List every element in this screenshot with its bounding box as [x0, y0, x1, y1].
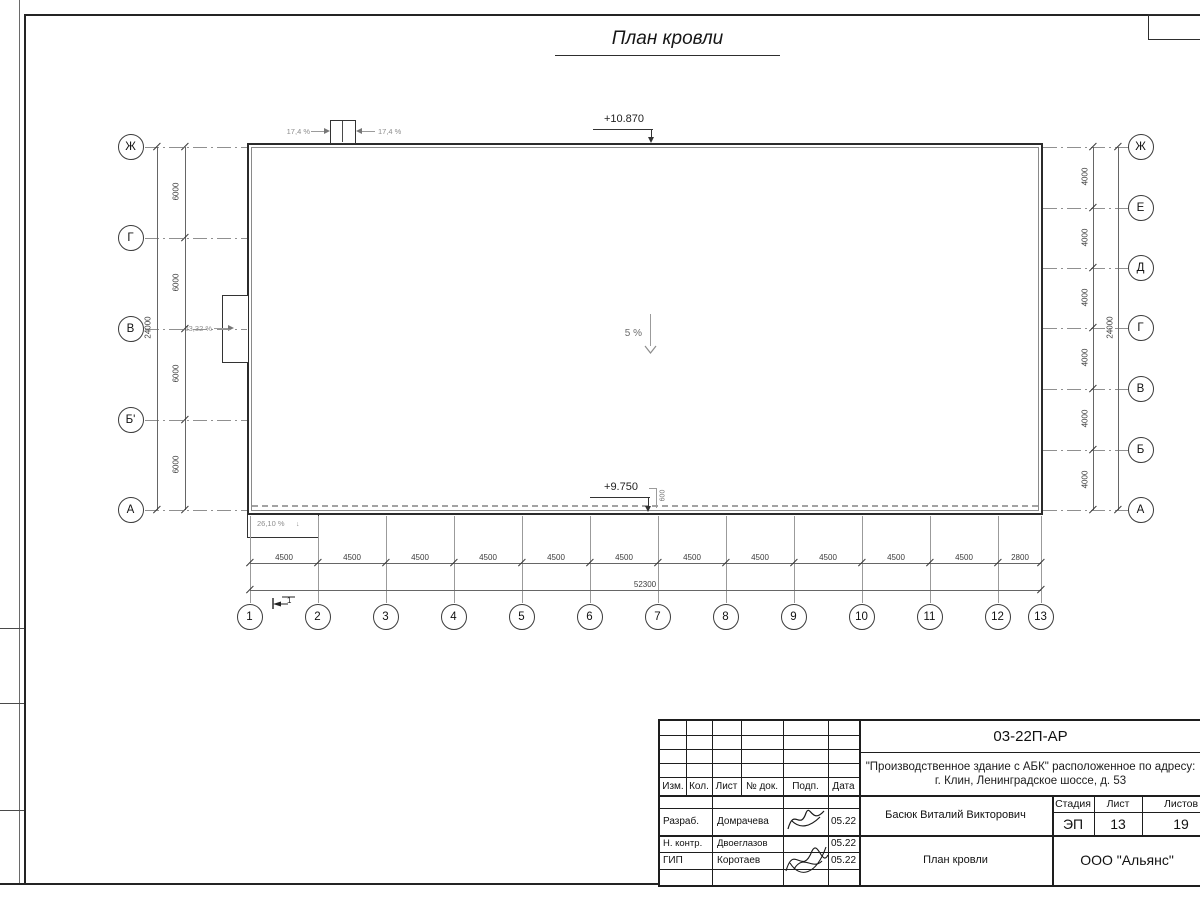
roof-slope-label: 5 %	[612, 328, 642, 339]
dim-label: 4500	[740, 553, 780, 562]
column-label: 1	[246, 611, 252, 623]
signer-name: Домрачева	[714, 808, 786, 835]
dim-label: 4500	[468, 553, 508, 562]
signer-name: Двоеглазов	[714, 835, 786, 852]
sheets-label: Листов	[1142, 795, 1200, 812]
margin-box-divider	[0, 703, 24, 704]
signer-name: Коротаев	[714, 852, 786, 869]
axis-bubble: Ж	[118, 134, 144, 160]
dim-label: 4000	[1081, 460, 1090, 500]
canopy-slope-label: 26,10 %	[257, 519, 285, 528]
stage-label: Стадия	[1052, 795, 1094, 812]
dim-total-label: 24000	[1106, 303, 1115, 353]
sheets-value: 19	[1142, 812, 1200, 835]
stamp-line	[660, 763, 859, 764]
page-title: План кровли	[555, 28, 780, 56]
dim-label: 6000	[172, 172, 181, 212]
margin-box-divider	[0, 810, 24, 811]
company-name: ООО "Альянс"	[1052, 835, 1200, 885]
parapet-dim-label: 600	[660, 481, 667, 511]
sheet-value: 13	[1094, 812, 1142, 835]
stamp-col-list: Лист	[712, 777, 741, 795]
dim-label: 4500	[332, 553, 372, 562]
dimension-line	[157, 147, 158, 510]
drawing-name: План кровли	[859, 835, 1052, 885]
column-label: 11	[924, 611, 936, 623]
dim-label: 4500	[944, 553, 984, 562]
axis-label: Б'	[126, 414, 136, 426]
skylight-slope-left-label: 17,4 %	[280, 127, 310, 136]
grid-column-bubble: 13	[1028, 604, 1054, 630]
axis-label: А	[1137, 504, 1145, 516]
dim-total-label: 24000	[144, 303, 153, 353]
dim-label: 4000	[1081, 338, 1090, 378]
column-label: 6	[586, 611, 592, 623]
dim-label: 4500	[536, 553, 576, 562]
axis-label: Д	[1137, 262, 1145, 274]
stamp-col-ndok: № док.	[741, 777, 783, 795]
dim-label: 6000	[172, 354, 181, 394]
axis-line	[1043, 450, 1128, 451]
axis-line	[145, 238, 247, 239]
dim-label: 4000	[1081, 157, 1090, 197]
corner-stamp-box	[1148, 14, 1200, 40]
grid-column-bubble: 4	[441, 604, 467, 630]
grid-column-bubble: 1	[237, 604, 263, 630]
margin-box-divider	[0, 628, 24, 629]
grid-column-bubble: 5	[509, 604, 535, 630]
roof-inner-line	[251, 147, 1039, 511]
axis-bubble: Д	[1128, 255, 1154, 281]
signer-date: 05.22	[828, 835, 859, 852]
axis-bubble: А	[118, 497, 144, 523]
column-label: 12	[991, 611, 1004, 623]
roof-outline	[247, 143, 1043, 515]
slope-arrow-left-icon	[356, 128, 362, 134]
grid-column-bubble: 2	[305, 604, 331, 630]
stamp-col-podp: Подп.	[783, 777, 828, 795]
skylight	[330, 120, 356, 144]
axis-line	[1043, 208, 1128, 209]
dim-label: 4500	[672, 553, 712, 562]
elevation-arrow-icon	[645, 506, 651, 512]
skylight-divider	[342, 121, 343, 142]
dim-label: 4500	[876, 553, 916, 562]
signer-date: 05.22	[828, 808, 859, 835]
elevation-arrow-icon	[648, 137, 654, 143]
signer-date: 05.22	[828, 852, 859, 869]
dim-label: 4500	[264, 553, 304, 562]
sheet-trim-line	[19, 0, 20, 883]
column-label: 2	[314, 611, 320, 623]
column-label: 7	[654, 611, 660, 623]
dim-label: 2800	[1000, 553, 1040, 562]
axis-label: В	[1137, 383, 1145, 395]
sheet-label: Лист	[1094, 795, 1142, 812]
stamp-line	[660, 735, 859, 736]
elevation-leader	[593, 129, 653, 130]
dim-label: 4500	[400, 553, 440, 562]
stamp-col-izm: Изм.	[660, 777, 686, 795]
dim-label: 4500	[808, 553, 848, 562]
dim-label: 4000	[1081, 399, 1090, 439]
grid-column-bubble: 3	[373, 604, 399, 630]
grid-column-bubble: 10	[849, 604, 875, 630]
project-line1: "Производственное здание с АБК" располож…	[866, 760, 1196, 774]
axis-line	[1043, 328, 1128, 329]
column-label: 9	[790, 611, 796, 623]
axis-label: Ж	[1135, 141, 1146, 153]
axis-bubble: Е	[1128, 195, 1154, 221]
axis-bubble: Б'	[118, 407, 144, 433]
dim-label: 4000	[1081, 278, 1090, 318]
parapet-dim-leader	[656, 488, 657, 508]
stamp-col-kol: Кол.	[686, 777, 712, 795]
frame-top	[24, 14, 1200, 16]
column-label: 8	[722, 611, 728, 623]
frame-left	[24, 14, 26, 883]
stamp-line	[660, 749, 859, 750]
section-mark-icon: 1	[268, 592, 298, 612]
column-label: 13	[1034, 611, 1047, 623]
bottom-canopy: 26,10 % ↓	[247, 515, 319, 538]
signature-icon	[784, 801, 828, 837]
axis-label: Г	[127, 232, 133, 244]
axis-label: Г	[1137, 322, 1143, 334]
dimension-line	[250, 563, 1041, 564]
axis-label: В	[127, 323, 135, 335]
axis-bubble: А	[1128, 497, 1154, 523]
signature-icon	[782, 835, 832, 881]
column-label: 3	[382, 611, 388, 623]
axis-label: А	[127, 504, 135, 516]
signer-role: Н. контр.	[660, 835, 715, 852]
column-label: 10	[855, 611, 868, 623]
dimension-line	[1118, 147, 1119, 510]
project-line2: г. Клин, Ленинградское шоссе, д. 53	[935, 774, 1126, 788]
stamp-col-data: Дата	[828, 777, 859, 795]
axis-label: Е	[1137, 202, 1145, 214]
column-label: 4	[450, 611, 456, 623]
axis-bubble: Г	[118, 225, 144, 251]
dim-label: 4500	[604, 553, 644, 562]
axis-bubble: В	[1128, 376, 1154, 402]
skylight-slope-right-label: 17,4 %	[378, 127, 408, 136]
axis-bubble: Б	[1128, 437, 1154, 463]
project-name: "Производственное здание с АБК" располож…	[859, 752, 1200, 795]
grid-column-bubble: 12	[985, 604, 1011, 630]
slope-open-arrow-icon	[644, 345, 657, 354]
axis-line	[1043, 389, 1128, 390]
axis-label: Ж	[125, 141, 136, 153]
dim-label: 4000	[1081, 218, 1090, 258]
elevation-bottom-label: +9.750	[592, 481, 650, 493]
grid-column-bubble: 6	[577, 604, 603, 630]
canopy-slope-arrow-icon: ↓	[296, 521, 300, 528]
grid-column-bubble: 7	[645, 604, 671, 630]
approver-name: Басюк Виталий Викторович	[859, 795, 1052, 835]
signer-role: Разраб.	[660, 808, 715, 835]
axis-line	[145, 420, 247, 421]
doc-number: 03-22П-АР	[859, 721, 1200, 752]
svg-text:1: 1	[287, 596, 292, 605]
signer-role: ГИП	[660, 852, 715, 869]
dim-label: 6000	[172, 263, 181, 303]
axis-bubble: Ж	[1128, 134, 1154, 160]
title-block: Изм. Кол. Лист № док. Подп. Дата Разраб.…	[658, 719, 1200, 887]
elevation-top-label: +10.870	[595, 113, 653, 125]
stage-value: ЭП	[1052, 812, 1094, 835]
grid-column-bubble: 11	[917, 604, 943, 630]
slope-arrow-right-icon	[324, 128, 330, 134]
axis-bubble: В	[118, 316, 144, 342]
axis-line	[1043, 268, 1128, 269]
axis-line	[145, 329, 247, 330]
dim-label: 6000	[172, 445, 181, 485]
column-label: 5	[518, 611, 524, 623]
axis-line	[145, 510, 247, 511]
slope-arrow-right-icon	[228, 325, 234, 331]
dimension-line	[250, 590, 1041, 591]
grid-column-bubble: 9	[781, 604, 807, 630]
axis-line	[145, 147, 247, 148]
axis-label: Б	[1137, 444, 1145, 456]
slope-arrow-line	[360, 131, 375, 132]
slope-direction-line	[650, 314, 651, 346]
axis-bubble: Г	[1128, 315, 1154, 341]
dim-total-label: 52300	[620, 580, 670, 589]
elevation-leader	[590, 497, 650, 498]
grid-column-bubble: 8	[713, 604, 739, 630]
